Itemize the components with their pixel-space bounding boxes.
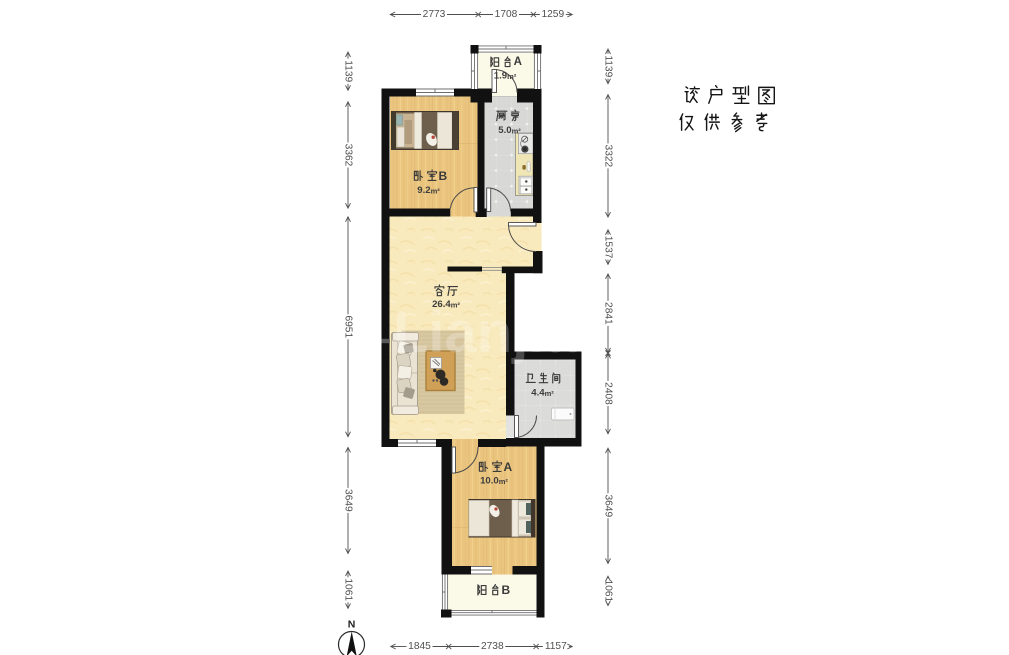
svg-text:9.2m²: 9.2m² — [417, 185, 440, 196]
svg-text:B: B — [438, 169, 447, 183]
svg-text:3649: 3649 — [603, 494, 614, 517]
svg-text:1139: 1139 — [343, 60, 354, 82]
svg-text:A: A — [514, 56, 522, 68]
svg-text:2738: 2738 — [481, 641, 504, 652]
svg-text:4.4m²: 4.4m² — [531, 388, 554, 399]
svg-text:1259: 1259 — [541, 9, 564, 20]
svg-text:N: N — [348, 619, 356, 631]
svg-text:A: A — [503, 460, 512, 474]
svg-text:2841: 2841 — [603, 302, 614, 325]
svg-text:Lianjia: Lianjia — [393, 300, 577, 365]
svg-text:1061: 1061 — [603, 580, 614, 603]
svg-text:1.9m²: 1.9m² — [494, 71, 517, 82]
svg-text:26.4m²: 26.4m² — [432, 299, 460, 310]
svg-text:3649: 3649 — [343, 489, 354, 512]
svg-text:B: B — [501, 583, 510, 597]
svg-text:1845: 1845 — [408, 641, 431, 652]
svg-text:1157: 1157 — [545, 641, 567, 652]
svg-text:10.0m²: 10.0m² — [480, 476, 508, 487]
svg-text:1708: 1708 — [495, 9, 518, 20]
svg-text:2773: 2773 — [423, 9, 446, 20]
svg-text:6951: 6951 — [343, 315, 354, 338]
svg-text:1537: 1537 — [603, 236, 614, 259]
svg-text:1061: 1061 — [343, 578, 354, 601]
svg-text:5.0m²: 5.0m² — [498, 125, 521, 136]
svg-text:3362: 3362 — [343, 144, 354, 167]
svg-text:1139: 1139 — [603, 55, 614, 77]
svg-text:3322: 3322 — [603, 145, 614, 168]
svg-text:2408: 2408 — [603, 382, 614, 405]
